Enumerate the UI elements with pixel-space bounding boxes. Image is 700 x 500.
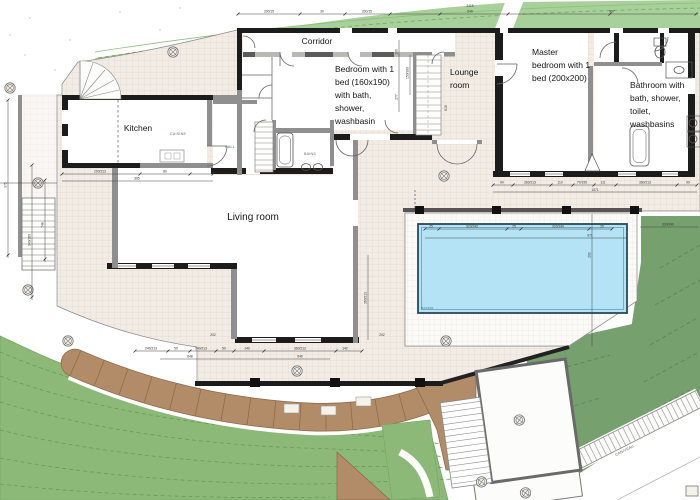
room-label-corridor: Corridor bbox=[302, 36, 333, 46]
svg-text:375: 375 bbox=[4, 182, 8, 188]
floor-plan-page: Corridor Kitchen Living room Lounge room… bbox=[0, 0, 700, 500]
svg-text:bedroom with 1: bedroom with 1 bbox=[532, 60, 590, 70]
svg-text:room: room bbox=[450, 80, 469, 90]
svg-text:150/300: 150/300 bbox=[406, 67, 410, 79]
manhole-icon bbox=[441, 336, 451, 346]
svg-text:360/212: 360/212 bbox=[294, 347, 306, 351]
svg-text:1071: 1071 bbox=[591, 188, 599, 192]
label-cuisine: CUISINE bbox=[170, 132, 187, 136]
manhole-icon bbox=[292, 366, 302, 376]
corridor-floor bbox=[243, 33, 455, 52]
svg-text:111: 111 bbox=[600, 181, 605, 185]
svg-text:640: 640 bbox=[467, 10, 473, 14]
svg-text:25: 25 bbox=[429, 225, 433, 229]
svg-text:240/213: 240/213 bbox=[195, 347, 207, 351]
label-hall: HALL bbox=[225, 145, 235, 149]
svg-text:277: 277 bbox=[395, 94, 399, 100]
manhole-icon bbox=[439, 171, 449, 181]
manhole-icon bbox=[168, 47, 178, 57]
staircase-hall bbox=[255, 122, 273, 172]
svg-text:200/15: 200/15 bbox=[362, 10, 372, 14]
svg-text:748: 748 bbox=[41, 222, 45, 228]
floor-plan-drawing: Corridor Kitchen Living room Lounge room… bbox=[0, 0, 700, 500]
svg-text:971: 971 bbox=[587, 234, 593, 238]
svg-text:100: 100 bbox=[395, 49, 399, 55]
svg-text:2415: 2415 bbox=[466, 4, 474, 8]
room-label-bedroom: Bedroom with 1 bbox=[335, 64, 394, 74]
svg-text:shower,: shower, bbox=[335, 103, 364, 113]
svg-text:toilet,: toilet, bbox=[630, 106, 650, 116]
concrete-pad bbox=[476, 359, 581, 482]
svg-text:142: 142 bbox=[342, 347, 348, 351]
room-label-bathroom: Bathroom with bbox=[630, 80, 685, 90]
manhole-icon bbox=[23, 285, 33, 295]
svg-text:200/213: 200/213 bbox=[94, 170, 106, 174]
svg-text:240/213: 240/213 bbox=[145, 347, 157, 351]
room-label-kitchen: Kitchen bbox=[124, 123, 153, 133]
svg-text:365: 365 bbox=[134, 177, 140, 181]
svg-text:110: 110 bbox=[557, 181, 562, 185]
staircase-lounge bbox=[416, 55, 441, 135]
staircase-west bbox=[22, 198, 55, 270]
svg-text:202: 202 bbox=[210, 333, 216, 337]
svg-text:50: 50 bbox=[174, 347, 178, 351]
svg-text:bed (200x200): bed (200x200) bbox=[532, 73, 587, 83]
svg-text:30: 30 bbox=[320, 10, 324, 14]
room-label-master: Master bbox=[532, 47, 558, 57]
svg-text:90: 90 bbox=[686, 181, 690, 185]
svg-text:140: 140 bbox=[244, 347, 250, 351]
swimming-pool bbox=[418, 224, 627, 313]
svg-text:with bath,: with bath, bbox=[334, 90, 371, 100]
svg-text:202: 202 bbox=[379, 333, 385, 337]
svg-text:bed (160x190): bed (160x190) bbox=[335, 77, 390, 87]
svg-text:360/213: 360/213 bbox=[524, 181, 536, 185]
manhole-icon bbox=[63, 336, 73, 346]
svg-text:320/240: 320/240 bbox=[466, 225, 478, 229]
svg-text:360/213: 360/213 bbox=[364, 292, 368, 304]
room-label-living: Living room bbox=[227, 212, 279, 223]
svg-text:90: 90 bbox=[500, 181, 504, 185]
manhole-icon bbox=[5, 83, 15, 93]
lawn-tongue bbox=[382, 420, 440, 500]
svg-text:202: 202 bbox=[588, 252, 592, 258]
svg-text:70/195: 70/195 bbox=[577, 181, 587, 185]
room-label-lounge: Lounge bbox=[450, 67, 479, 77]
svg-text:320/240: 320/240 bbox=[662, 223, 674, 227]
svg-text:320/240: 320/240 bbox=[552, 225, 564, 229]
svg-text:50: 50 bbox=[222, 347, 226, 351]
svg-text:25: 25 bbox=[512, 225, 516, 229]
label-bassin: BASSIN bbox=[421, 306, 434, 310]
utility-box bbox=[686, 486, 698, 496]
svg-text:bath, shower,: bath, shower, bbox=[630, 93, 681, 103]
svg-text:80: 80 bbox=[163, 170, 167, 174]
svg-text:360/213: 360/213 bbox=[639, 181, 651, 185]
svg-text:340/160: 340/160 bbox=[28, 234, 32, 246]
svg-text:610: 610 bbox=[444, 105, 448, 111]
svg-text:25: 25 bbox=[600, 225, 604, 229]
svg-text:200/15: 200/15 bbox=[264, 10, 274, 14]
svg-text:648: 648 bbox=[187, 355, 193, 359]
svg-text:907: 907 bbox=[609, 10, 615, 14]
label-bains: BAINS bbox=[304, 152, 316, 156]
svg-text:washbasins: washbasins bbox=[629, 119, 674, 129]
svg-text:washbasin: washbasin bbox=[334, 116, 375, 126]
svg-text:640: 640 bbox=[297, 355, 303, 359]
